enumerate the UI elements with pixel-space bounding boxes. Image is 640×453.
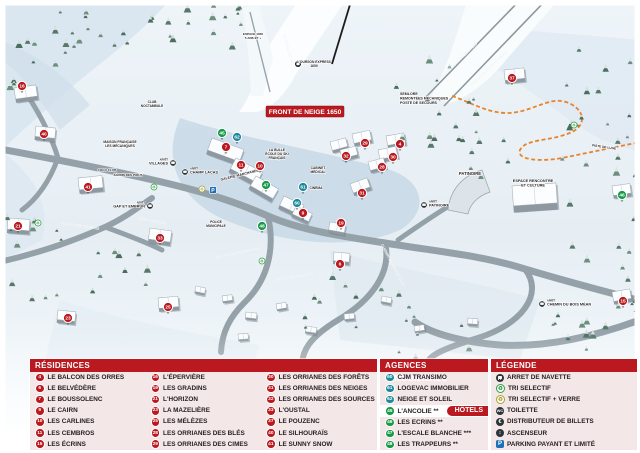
bus-stop-label: VILLAGES: [149, 162, 168, 166]
legend-item-label: ASCENSEUR: [507, 430, 547, 437]
recy-icon: ♻: [496, 395, 505, 404]
marker-number-badge: 31: [266, 384, 276, 394]
hotel-item-label: L'ESCALE BLANCHE ***: [398, 430, 472, 437]
hotel-item: 48LES TRAPPEURS **: [380, 439, 488, 450]
legend-item-label: DISTRIBUTEUR DE BILLETS: [507, 418, 594, 425]
legend-item-label: TRI SELECTIF: [508, 385, 551, 392]
residence-item: 19LES GRADINS: [146, 383, 262, 394]
agency-item: 62NEIGE ET SOLEIL: [380, 394, 488, 405]
marker-number: 4: [399, 142, 402, 148]
poi-label: MAISON FRANÇAISELES MÉCANIQUES: [103, 140, 137, 148]
recycling-icon: ♻: [259, 258, 265, 264]
marker-number-badge: 45: [385, 406, 395, 416]
marker-number: 11: [238, 163, 243, 169]
residence-item-label: LE SUNNY SNOW: [279, 441, 333, 448]
marker-number: 32: [343, 154, 349, 160]
legend-item: ♻TRI SELECTIF + VERRE: [491, 394, 637, 405]
marker-number-badge: 4: [35, 373, 45, 383]
residence-item: 30LES ORRIANES DES FORÊTS: [261, 372, 377, 383]
agency-item-label: LOGEVAC IMMOBILIER: [398, 385, 469, 392]
poi-label: PATINOIRE: [459, 171, 481, 176]
svg-text:♻: ♻: [152, 185, 156, 190]
atm-icon: €: [496, 418, 504, 426]
marker-number: 48: [259, 224, 265, 230]
marker-number-badge: 6: [35, 384, 45, 394]
marker-number-badge: 60: [385, 373, 395, 383]
marker-number: 15: [620, 299, 626, 305]
marker-number: 61: [300, 185, 306, 191]
residence-item: 28LES ORRIANES DES BLÉS: [146, 427, 262, 438]
legend-item-label: ARRET DE NAVETTE: [507, 374, 571, 381]
marker-number: 16: [19, 84, 25, 90]
bus-stop-label: GAP ET EMBRUN: [113, 205, 145, 209]
poi-label: CINÉMA: [309, 185, 323, 190]
marker-number-badge: 25: [151, 417, 161, 427]
residence-item-label: L'OUSTAL: [279, 407, 310, 414]
recycling-icon: ♻: [35, 220, 41, 226]
poi-label: JARDIN DES PIOUS: [113, 173, 142, 177]
poi-label: ESPACE 16505 ANS ET +: [243, 32, 264, 40]
marker-number-badge: 9: [35, 406, 45, 416]
recycling-icon: ♻: [571, 122, 577, 128]
residence-item-label: L'ÉPERVIÈRE: [163, 374, 205, 381]
marker-number: 9: [302, 211, 305, 217]
marker-number-badge: 10: [35, 417, 45, 427]
residence-item-label: LES MÉLÈZES: [163, 418, 207, 425]
recycling-icon: ♻: [199, 186, 205, 192]
marker-number: 6: [339, 262, 342, 268]
marker-number: 60: [294, 201, 300, 207]
marker-number-badge: 7: [35, 395, 45, 405]
legend-item: ↕ASCENSEUR: [491, 427, 637, 438]
residence-item: 4LE BALCON DES ORRES: [30, 372, 146, 383]
residence-item-label: LE POUZENC: [279, 418, 320, 425]
marker-number: 40: [41, 132, 47, 138]
svg-text:FRONT DE NEIGE 1650: FRONT DE NEIGE 1650: [269, 109, 342, 116]
marker-number-badge: 33: [266, 406, 276, 416]
marker-number-badge: 29: [151, 439, 161, 449]
svg-text:♻: ♻: [572, 123, 576, 128]
residence-item: 41LE SUNNY SNOW: [261, 439, 377, 450]
panel-legende: LÉGENDE ARRET DE NAVETTE♻TRI SELECTIF♻TR…: [491, 359, 637, 450]
legend-item-label: PARKING PAYANT ET LIMITÉ: [507, 441, 595, 448]
marker-number-badge: 11: [35, 428, 45, 438]
hotel-item: 47L'ESCALE BLANCHE ***: [380, 428, 488, 439]
marker-number-badge: 37: [266, 417, 276, 427]
marker-number-badge: 21: [151, 395, 161, 405]
residence-item-label: L'HORIZON: [163, 396, 198, 403]
residence-item-label: LES CARLINES: [48, 418, 95, 425]
agency-item-label: CJM TRANSIMO: [398, 374, 447, 381]
residence-item-label: LES ORRIANES DES SOURCES: [279, 396, 375, 403]
marker-number-badge: 40: [266, 428, 276, 438]
residence-item: 31LES ORRIANES DES NEIGES: [261, 383, 377, 394]
residence-item: 11LES CEMBROS: [30, 427, 146, 438]
marker-number-badge: 28: [151, 428, 161, 438]
parking-icon: P: [210, 187, 217, 194]
svg-text:♻: ♻: [36, 221, 40, 226]
panel-agences: AGENCES IMMOBILIÈRES 60CJM TRANSIMO61LOG…: [380, 359, 488, 450]
panel-hotels-title: HÔTELS: [447, 406, 488, 416]
residence-item-label: LES CEMBROS: [48, 430, 95, 437]
svg-text:♻: ♻: [200, 187, 204, 192]
legend-item: ♻TRI SELECTIF: [491, 383, 637, 394]
bus-stop-label: CHEMIN DU BOIS MÉAN: [547, 302, 591, 307]
panel-agences-title: AGENCES IMMOBILIÈRES: [380, 359, 488, 372]
marker-number-badge: 46: [385, 418, 395, 428]
marker-number: 10: [257, 164, 263, 170]
residence-item: 29LES ORRIANES DES CIMES: [146, 439, 262, 450]
bus-stop-label: PATINOIRE: [429, 204, 450, 208]
marker-number: 21: [15, 224, 21, 230]
residence-item: 16L'ÉPERVIÈRE: [146, 372, 262, 383]
svg-text:♻: ♻: [260, 259, 264, 264]
marker-number: 62: [234, 135, 240, 141]
legend-panels: RÉSIDENCES 4LE BALCON DES ORRES6LE BELVÉ…: [0, 359, 640, 450]
marker-number: 46: [619, 193, 625, 199]
marker-number: 25: [165, 305, 171, 311]
residence-item: 10LES CARLINES: [30, 416, 146, 427]
hotel-item: 46LES ECRINS **: [380, 417, 488, 428]
marker-number-badge: 47: [385, 429, 395, 439]
legend-item: PPARKING PAYANT ET LIMITÉ: [491, 439, 637, 450]
residence-item-label: LE CAIRN: [48, 407, 78, 414]
svg-text:P: P: [211, 188, 215, 194]
marker-number-badge: 32: [266, 395, 276, 405]
residence-item: 9LE CAIRN: [30, 405, 146, 416]
panel-residences-title: RÉSIDENCES: [30, 359, 377, 372]
marker-number: 41: [85, 185, 91, 191]
marker-number: 47: [263, 183, 269, 189]
residence-item: 32LES ORRIANES DES SOURCES: [261, 394, 377, 405]
hotel-item-label: LES ECRINS **: [398, 419, 443, 426]
residence-item: 15LES ÉCRINS: [30, 439, 146, 450]
residence-item-label: LES ORRIANES DES CIMES: [163, 441, 248, 448]
marker-number-badge: 62: [385, 395, 395, 405]
marker-number: 28: [379, 165, 385, 171]
residence-item-label: LE SILHOURAÏS: [279, 430, 328, 437]
marker-number: 33: [157, 236, 163, 242]
residence-item: 33L'OUSTAL: [261, 405, 377, 416]
bus-stop-label: CHAMP LACAS: [190, 171, 218, 175]
poi-label: CABINETMÉDICAL: [310, 166, 325, 174]
marker-number: 31: [359, 191, 365, 197]
marker-number-badge: 15: [35, 439, 45, 449]
bus-icon: [496, 374, 504, 382]
hotel-item-label: L'ANCOLIE **: [398, 408, 439, 415]
residence-item-label: LES ORRIANES DES NEIGES: [279, 385, 368, 392]
residence-item: 21L'HORIZON: [146, 394, 262, 405]
residence-item-label: LE BALCON DES ORRES: [48, 374, 125, 381]
elev-icon: ↕: [496, 429, 504, 437]
legend-item: WCTOILETTE: [491, 405, 637, 416]
residence-item: 23LA MAZELIÈRE: [146, 405, 262, 416]
hotel-item-label: LES TRAPPEURS **: [398, 441, 458, 448]
front-de-neige-banner: FRONT DE NEIGE 1650: [266, 106, 344, 117]
legend-item-label: TOILETTE: [507, 407, 538, 414]
residence-item-label: LES ÉCRINS: [48, 441, 86, 448]
hotel-item: 45L'ANCOLIE **: [380, 405, 438, 416]
marker-number: 23: [65, 316, 71, 322]
resort-map-page: ROUTE DE PRAMOUTONCHEMIN DU MÉLÈZETPONT …: [0, 0, 640, 453]
marker-number-badge: 41: [266, 439, 276, 449]
residence-item-label: LES ORRIANES DES BLÉS: [163, 430, 245, 437]
marker-number-badge: 16: [151, 373, 161, 383]
residence-item: 7LE BOUSSOLENC: [30, 394, 146, 405]
marker-number-badge: 19: [151, 384, 161, 394]
marker-number: 19: [338, 221, 344, 227]
building: [245, 312, 258, 322]
marker-number-badge: 61: [385, 384, 395, 394]
legend-item-label: TRI SELECTIF + VERRE: [508, 396, 580, 403]
recg-icon: ♻: [496, 384, 505, 393]
building: [467, 318, 479, 328]
residence-item: 6LE BELVÉDÈRE: [30, 383, 146, 394]
residence-item-label: LES GRADINS: [163, 385, 207, 392]
marker-number: 7: [225, 145, 228, 151]
marker-number: 29: [362, 141, 368, 147]
recycling-icon: ♻: [151, 184, 157, 190]
panel-residences: RÉSIDENCES 4LE BALCON DES ORRES6LE BELVÉ…: [30, 359, 377, 450]
residence-item: 37LE POUZENC: [261, 416, 377, 427]
residence-item-label: LE BOUSSOLENC: [48, 396, 103, 403]
agency-item-label: NEIGE ET SOLEIL: [398, 396, 453, 403]
residence-item-label: LES ORRIANES DES FORÊTS: [279, 374, 370, 381]
legend-item: ARRET DE NAVETTE: [491, 372, 637, 383]
legend-item: €DISTRIBUTEUR DE BILLETS: [491, 416, 637, 427]
residence-item: 25LES MÉLÈZES: [146, 416, 262, 427]
marker-number-badge: 23: [151, 406, 161, 416]
marker-number-badge: 30: [266, 373, 276, 383]
marker-number: 37: [509, 76, 515, 82]
marker-number-badge: 48: [385, 440, 395, 450]
marker-number: 30: [390, 155, 396, 161]
residence-item: 40LE SILHOURAÏS: [261, 427, 377, 438]
wc-icon: WC: [496, 407, 504, 415]
hotels-header-row: 45L'ANCOLIE ** HÔTELS: [380, 405, 488, 417]
residence-item-label: LE BELVÉDÈRE: [48, 385, 97, 392]
panel-legende-title: LÉGENDE: [491, 359, 637, 372]
poi-label: COCO CLUB: [98, 168, 117, 172]
park-icon: P: [496, 440, 504, 448]
residence-item-label: LA MAZELIÈRE: [163, 407, 210, 414]
marker-number: 45: [219, 131, 225, 137]
